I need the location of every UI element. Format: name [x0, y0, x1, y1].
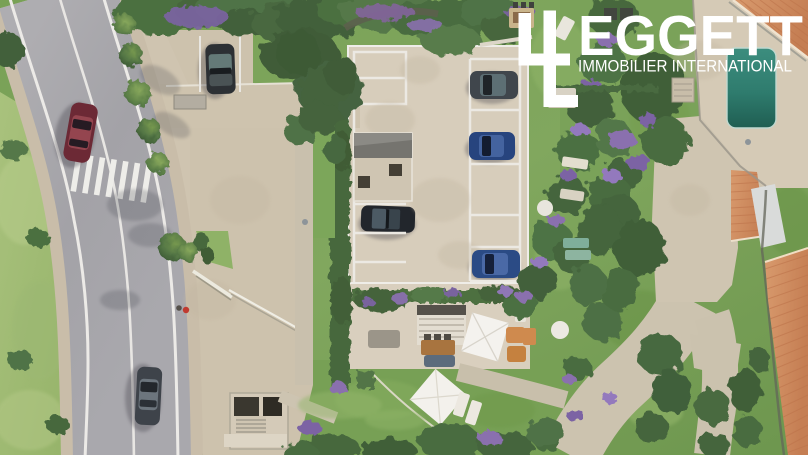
svg-text:IMMOBILIER INTERNATIONAL: IMMOBILIER INTERNATIONAL — [578, 57, 792, 76]
